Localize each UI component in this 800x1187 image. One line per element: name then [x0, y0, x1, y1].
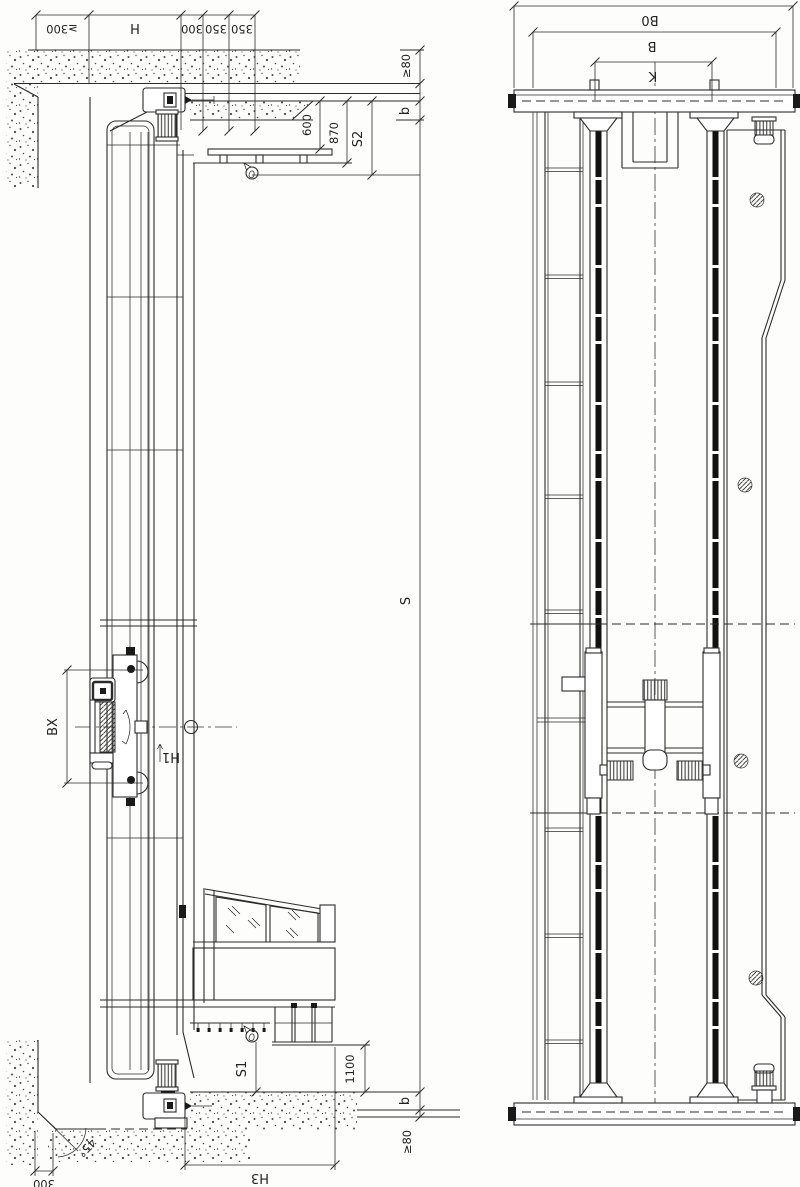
dim-height-h: H [130, 20, 140, 35]
right-view-side: B0 B K [508, 2, 800, 1126]
operator-cabin [193, 888, 370, 1045]
pit-floor-hatch [48, 1130, 250, 1162]
drive-shaft-stub [135, 721, 147, 733]
weld-spot [734, 754, 748, 768]
column-foot [697, 1083, 734, 1097]
dim-rail-b-bottom: b [398, 1097, 413, 1105]
fork-teeth [190, 1023, 270, 1032]
crane-installation-drawing: ≥300 H 300 350 350 ≥80 b 600 870 S2 S [0, 0, 800, 1187]
right-view-dimensions: B0 B K [510, 2, 798, 101]
carriage-body [113, 655, 137, 797]
bottom-rail-block [155, 1118, 187, 1128]
dim-rail-b-top: b [398, 107, 413, 115]
hoist-carriage [90, 647, 198, 806]
technical-drawing-page: ≥300 H 300 350 350 ≥80 b 600 870 S2 S [0, 0, 800, 1187]
left-view-elevation: ≥300 H 300 350 350 ≥80 b 600 870 S2 S [6, 11, 460, 1187]
dim-b: B [648, 38, 657, 53]
cabin-window-left [216, 897, 266, 942]
guide-cylinder-left [585, 652, 602, 798]
building-lines [14, 50, 460, 1157]
dim-bottom-clearance: ≥80 [400, 1130, 414, 1154]
top-platform [193, 149, 420, 179]
guide-roller-top [127, 665, 135, 673]
bottom-screw-coupling [158, 1064, 176, 1087]
dim-s1: S1 [235, 1061, 250, 1078]
cabin-window-right [270, 906, 318, 942]
dim-spacing-350b: 350 [231, 22, 253, 36]
side-panel [727, 130, 785, 1100]
column-foot [580, 1083, 617, 1097]
dim-1100: 1100 [343, 1054, 357, 1083]
end-beam-top [508, 80, 800, 168]
lead-screw [100, 702, 115, 752]
dim-travel-s: S [399, 597, 414, 605]
mast-columns [590, 131, 724, 1083]
dim-870: 870 [327, 122, 341, 144]
dim-k: K [648, 68, 657, 83]
dim-spacing-350a: 350 [205, 22, 227, 36]
small-motor-right [677, 761, 703, 780]
small-motor-left [607, 761, 633, 780]
ground-symbol-top [244, 163, 258, 179]
hoist-carriage-side [537, 648, 720, 814]
top-screw-coupling [158, 114, 176, 137]
dim-top-clearance: ≥80 [399, 54, 413, 78]
mast-outer-rail [107, 121, 154, 1079]
floor-hatch [190, 1092, 357, 1130]
buffer-left [508, 94, 516, 108]
weld-spot [738, 478, 752, 492]
dim-h1: H1 [162, 749, 180, 764]
column-foot [697, 118, 734, 131]
guide-cylinder-right [703, 652, 720, 798]
bottom-wall-hatch [6, 1040, 38, 1165]
dim-h3: H3 [251, 1170, 269, 1185]
travel-motor-top [755, 121, 773, 135]
dim-s2: S2 [351, 131, 366, 148]
travel-motor-bottom [755, 1071, 773, 1086]
platform-plank [208, 149, 332, 155]
hoist-motor-body [645, 700, 665, 752]
mast [90, 97, 197, 1083]
weld-spot [749, 971, 763, 985]
ground-symbol-bottom [244, 1026, 258, 1042]
end-beam-bottom [508, 1064, 800, 1125]
mast-clamp-block [179, 905, 186, 918]
dim-edge-300: 300 [33, 1177, 55, 1187]
buffer-right [793, 94, 800, 108]
mast-inner-rail [112, 126, 149, 1074]
buffer-right-bottom [793, 1107, 800, 1121]
column-foot [580, 118, 617, 131]
dim-spacing-300: 300 [181, 22, 203, 36]
dim-bx: BX [46, 718, 61, 736]
dim-600: 600 [300, 114, 314, 136]
ladder [533, 112, 583, 1100]
dim-wall-clearance: ≥300 [46, 22, 78, 36]
buffer-left-bottom [508, 1107, 516, 1121]
ceiling-hatch [28, 50, 300, 83]
weld-spot [750, 193, 764, 207]
hoist-motor-fan [643, 680, 667, 700]
dim-b0: B0 [641, 12, 658, 27]
